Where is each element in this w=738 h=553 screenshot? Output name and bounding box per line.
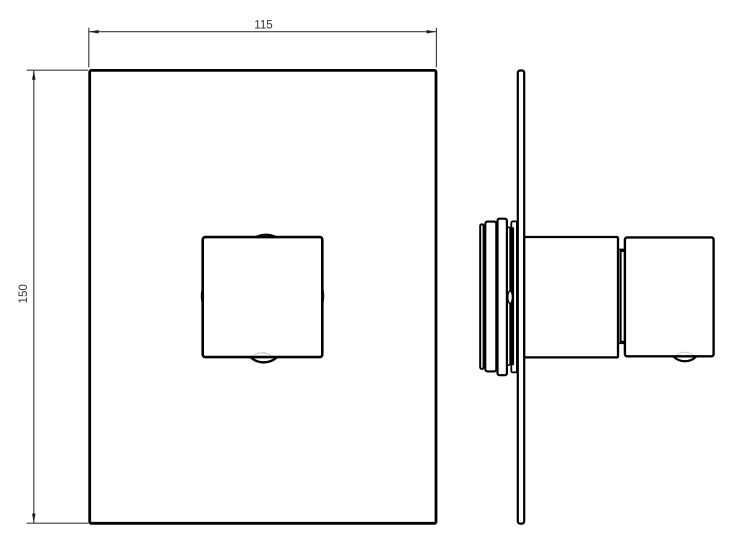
svg-text:150: 150 xyxy=(17,284,30,303)
svg-text:115: 115 xyxy=(254,19,272,32)
